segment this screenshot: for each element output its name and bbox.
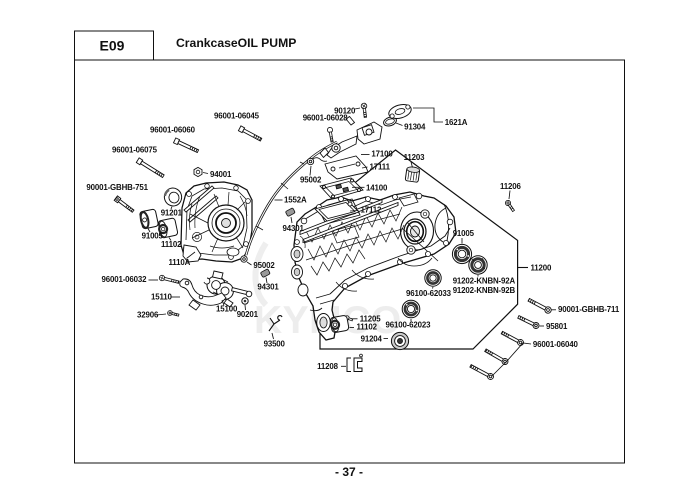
svg-text:1552A: 1552A — [284, 196, 307, 205]
svg-text:96001-06028: 96001-06028 — [303, 113, 349, 122]
svg-text:96100-62033: 96100-62033 — [406, 289, 452, 298]
svg-text:95002: 95002 — [300, 175, 322, 184]
svg-text:1110A: 1110A — [169, 258, 191, 267]
svg-text:E09: E09 — [100, 38, 125, 54]
svg-text:94301: 94301 — [283, 224, 305, 233]
svg-text:90201: 90201 — [237, 310, 259, 319]
svg-text:17111: 17111 — [370, 162, 391, 171]
svg-text:96001-06040: 96001-06040 — [533, 340, 579, 349]
svg-text:15100: 15100 — [216, 305, 238, 314]
svg-text:15110: 15110 — [151, 293, 173, 302]
svg-text:91204: 91204 — [361, 335, 383, 344]
svg-text:91202-KNBN-92A: 91202-KNBN-92A — [453, 277, 516, 286]
svg-text:32906: 32906 — [137, 311, 159, 320]
svg-text:91202-KNBN-92B: 91202-KNBN-92B — [453, 286, 516, 295]
svg-text:95002: 95002 — [253, 261, 275, 270]
svg-text:96100-62023: 96100-62023 — [386, 321, 432, 330]
svg-text:CrankcaseOIL PUMP: CrankcaseOIL PUMP — [176, 36, 296, 50]
svg-text:93500: 93500 — [264, 339, 286, 348]
svg-text:94001: 94001 — [210, 170, 232, 179]
svg-text:96001-06075: 96001-06075 — [112, 145, 158, 154]
svg-text:96001-06060: 96001-06060 — [150, 125, 196, 134]
svg-text:- 37 -: - 37 - — [335, 465, 363, 479]
svg-text:11208: 11208 — [317, 362, 339, 371]
svg-text:95801: 95801 — [546, 322, 568, 331]
svg-text:11200: 11200 — [531, 263, 553, 272]
svg-text:96001-06032: 96001-06032 — [102, 275, 148, 284]
svg-text:11102: 11102 — [357, 323, 378, 332]
svg-text:94301: 94301 — [257, 282, 279, 291]
svg-text:96001-06045: 96001-06045 — [214, 112, 260, 121]
svg-text:91201: 91201 — [161, 209, 183, 218]
svg-text:17112: 17112 — [361, 206, 383, 215]
svg-text:1621A: 1621A — [445, 118, 468, 127]
svg-text:11206: 11206 — [500, 182, 522, 191]
svg-text:90001-GBHB-751: 90001-GBHB-751 — [86, 183, 148, 192]
svg-text:91005: 91005 — [453, 229, 475, 238]
svg-text:11203: 11203 — [404, 153, 426, 162]
svg-text:17100: 17100 — [371, 150, 393, 159]
svg-text:11102: 11102 — [161, 240, 182, 249]
svg-text:14100: 14100 — [366, 184, 388, 193]
svg-text:91304: 91304 — [404, 122, 426, 131]
svg-text:90001-GBHB-711: 90001-GBHB-711 — [558, 305, 620, 314]
